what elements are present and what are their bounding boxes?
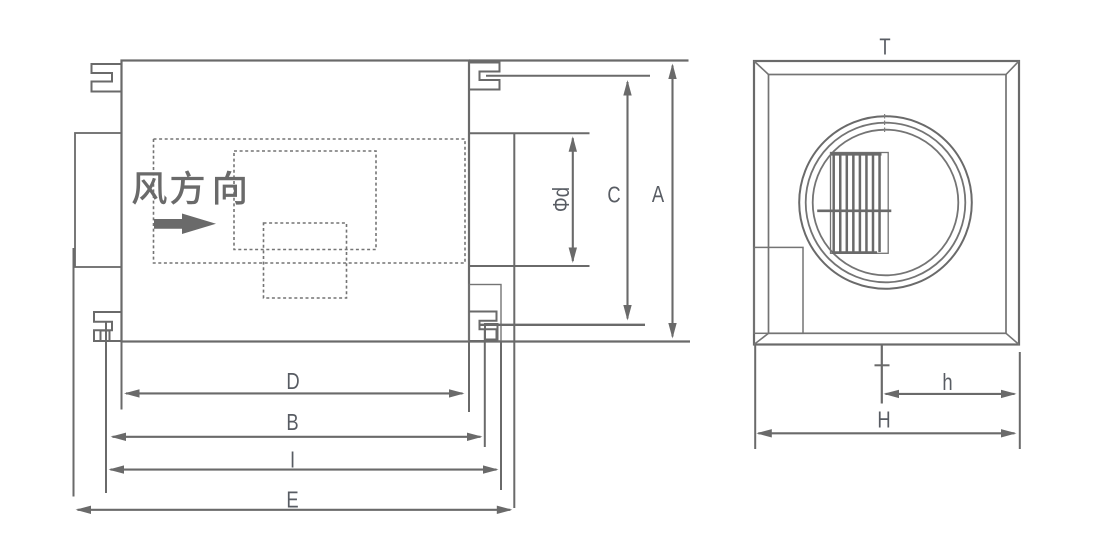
svg-text:Φd: Φd [549,187,574,212]
svg-text:B: B [286,410,298,435]
svg-text:E: E [286,488,298,513]
svg-text:T: T [879,35,890,60]
svg-text:C: C [607,183,620,208]
svg-text:H: H [877,408,890,433]
svg-text:I: I [290,448,295,473]
svg-text:D: D [286,369,299,394]
svg-text:h: h [942,370,952,395]
svg-text:A: A [652,182,664,207]
